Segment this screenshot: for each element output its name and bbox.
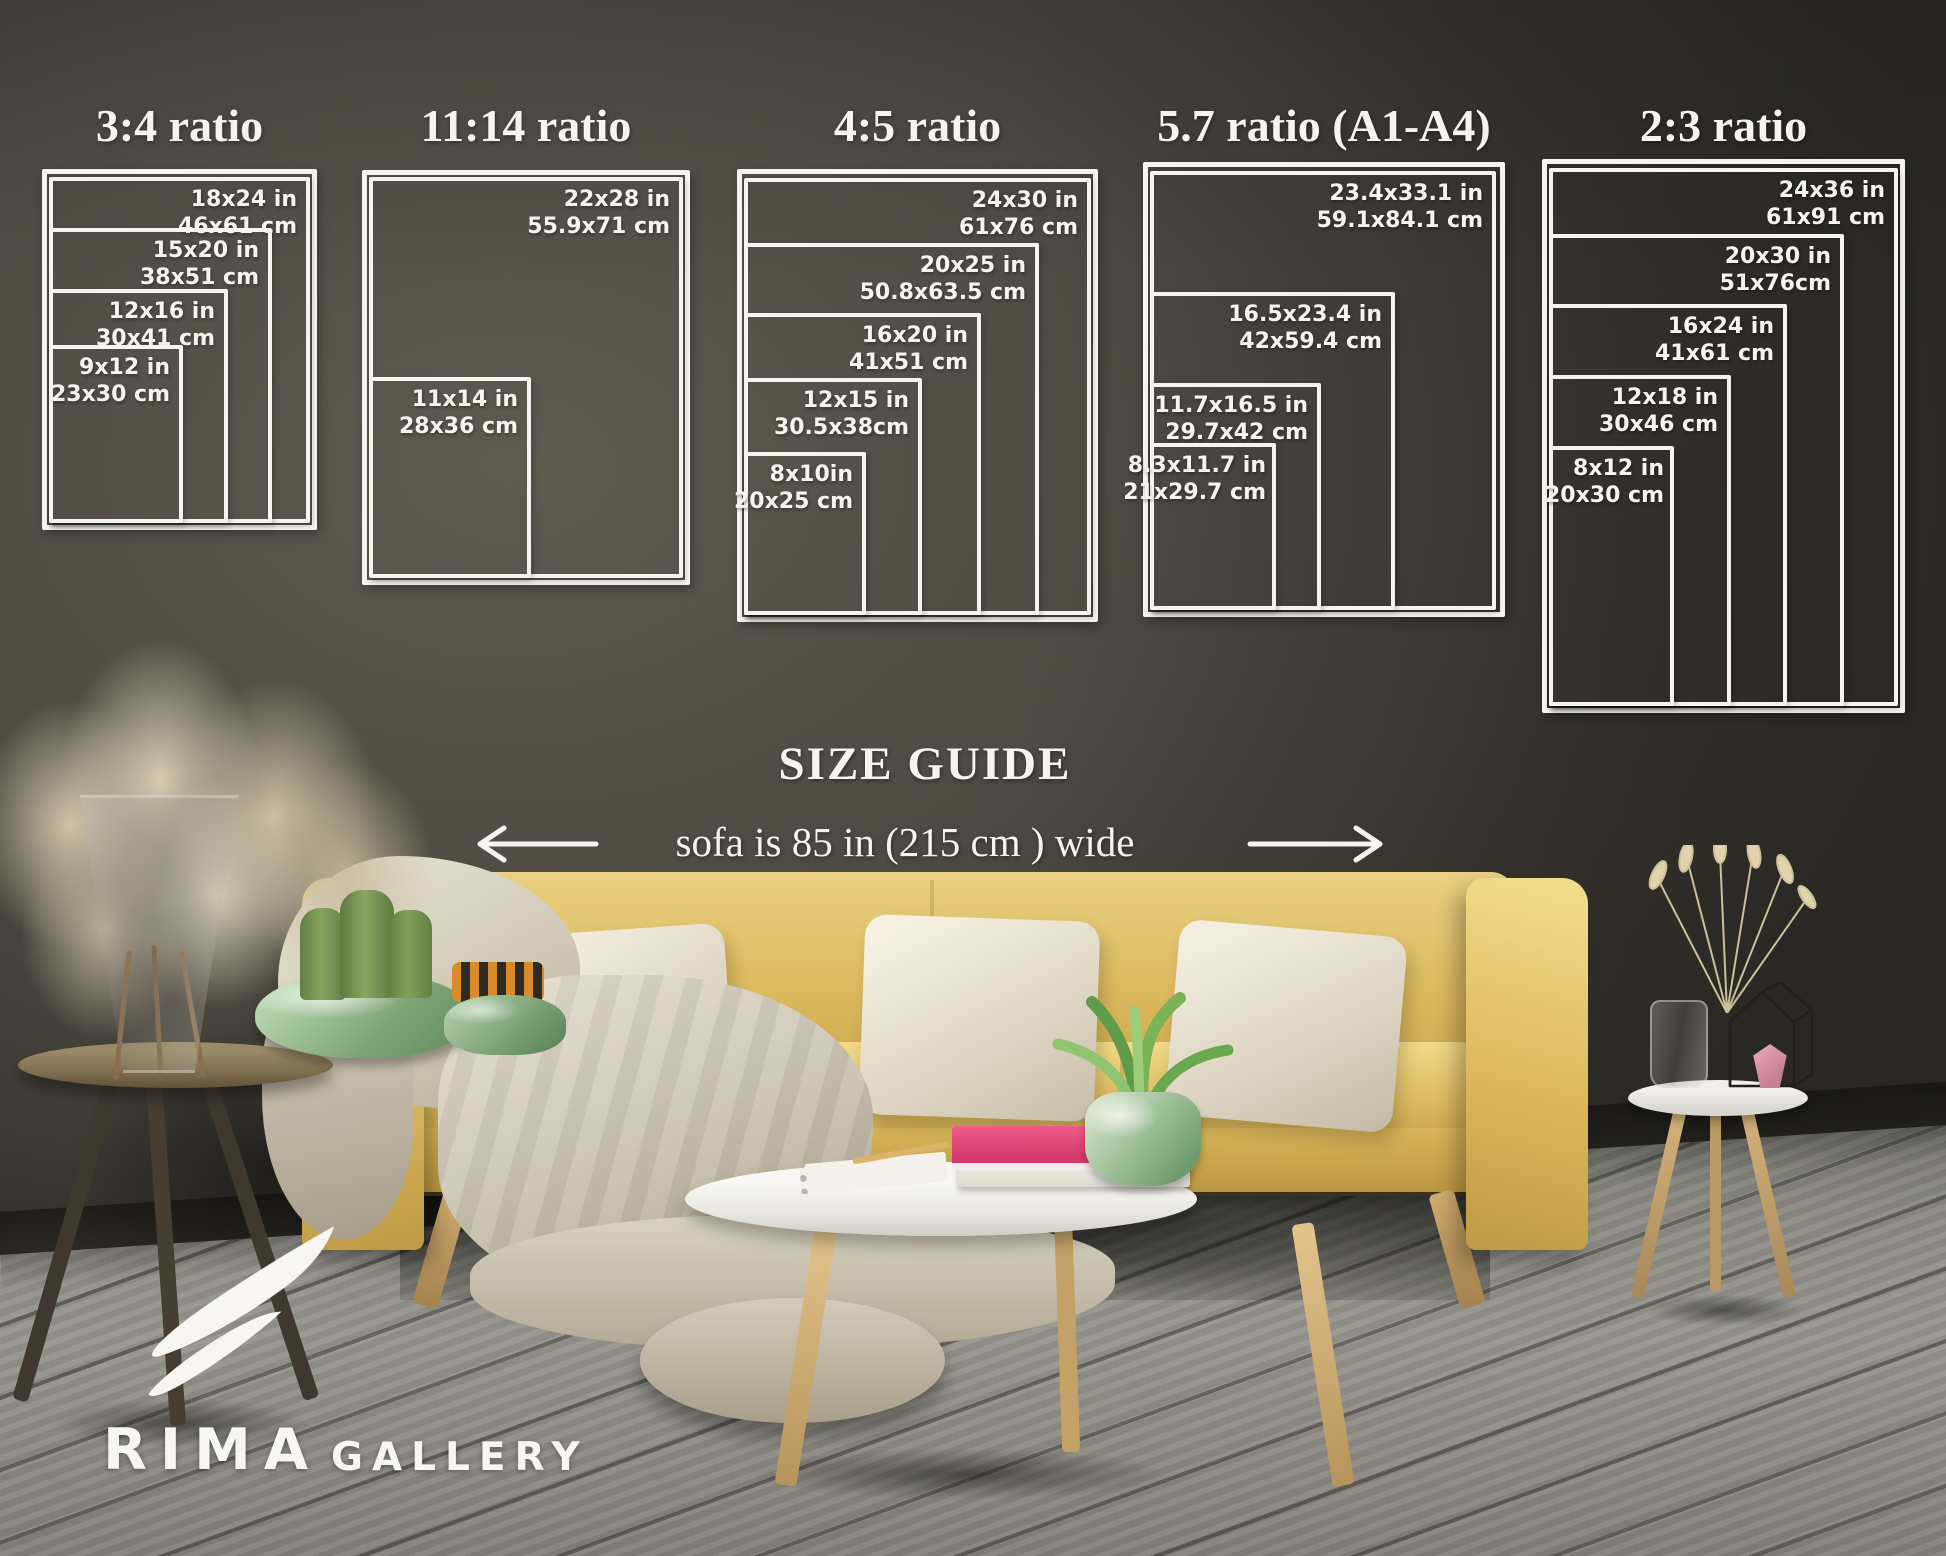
ratio-panel-2-3: 2:3 ratio 24x36 in 61x91 cm 20x30 in 51x…: [1542, 159, 1905, 713]
size-cm: 21x29.7 cm: [1123, 480, 1266, 507]
size-label: 16.5x23.4 in 42x59.4 cm: [1228, 302, 1382, 356]
right-table-leg: [1710, 1112, 1721, 1292]
size-label: 9x12 in 23x30 cm: [51, 355, 170, 409]
logo-brand-text: RIMA: [103, 1422, 321, 1479]
cactus-arm: [388, 910, 432, 998]
size-cm: 51x76cm: [1720, 271, 1831, 298]
logo-text: RIMA GALLERY: [103, 1422, 589, 1479]
logo-suffix-text: GALLERY: [331, 1438, 589, 1477]
size-cm: 30x46 cm: [1599, 412, 1718, 439]
size-rect-8x11: 8.3x11.7 in 21x29.7 cm: [1150, 443, 1276, 610]
size-rect-8x12: 8x12 in 20x30 cm: [1549, 446, 1674, 706]
size-label: 20x30 in 51x76cm: [1720, 244, 1831, 298]
ratio-panel-3-4: 3:4 ratio 18x24 in 46x61 cm 15x20 in 38x…: [42, 169, 317, 530]
size-cm: 20x25 cm: [734, 489, 853, 516]
size-inches: 12x18 in: [1599, 385, 1718, 412]
size-label: 24x30 in 61x76 cm: [959, 188, 1078, 242]
glass-bud-vase: [1650, 1000, 1708, 1088]
sofa-width-note: sofa is 85 in (215 cm ) wide: [676, 818, 1135, 866]
size-inches: 12x16 in: [96, 299, 215, 326]
size-inches: 24x30 in: [959, 188, 1078, 215]
ratio-panel-5-7: 5.7 ratio (A1-A4) 23.4x33.1 in 59.1x84.1…: [1143, 162, 1505, 617]
size-inches: 16x24 in: [1655, 314, 1774, 341]
small-green-pot: [444, 995, 566, 1055]
size-inches: 23.4x33.1 in: [1317, 181, 1483, 208]
cactus-body: [340, 890, 394, 998]
size-inches: 8x10in: [734, 462, 853, 489]
size-label: 16x20 in 41x51 cm: [849, 323, 968, 377]
panel-title: 5.7 ratio (A1-A4): [1157, 101, 1490, 152]
size-cm: 41x61 cm: [1655, 341, 1774, 368]
size-label: 15x20 in 38x51 cm: [140, 238, 259, 292]
size-inches: 12x15 in: [774, 388, 909, 415]
sofa-arm-right: [1466, 878, 1588, 1250]
size-inches: 8x12 in: [1545, 456, 1664, 483]
size-label: 8x10in 20x25 cm: [734, 462, 853, 516]
size-cm: 59.1x84.1 cm: [1317, 208, 1483, 235]
size-rect-11x14: 11x14 in 28x36 cm: [369, 377, 531, 578]
panel-title: 4:5 ratio: [834, 101, 1001, 152]
size-label: 16x24 in 41x61 cm: [1655, 314, 1774, 368]
size-inches: 16x20 in: [849, 323, 968, 350]
size-cm: 38x51 cm: [140, 265, 259, 292]
arrow-left-icon: [468, 822, 600, 866]
size-inches: 24x36 in: [1766, 178, 1885, 205]
green-vase: [1085, 1092, 1201, 1186]
size-label: 12x15 in 30.5x38cm: [774, 388, 909, 442]
size-rect-8x10: 8x10in 20x25 cm: [744, 452, 866, 615]
size-label: 8.3x11.7 in 21x29.7 cm: [1123, 453, 1266, 507]
size-guide-poster: 3:4 ratio 18x24 in 46x61 cm 15x20 in 38x…: [0, 0, 1946, 1556]
size-cm: 30.5x38cm: [774, 415, 909, 442]
swoosh-logo-icon: [112, 1226, 340, 1430]
size-cm: 61x91 cm: [1766, 205, 1885, 232]
size-cm: 55.9x71 cm: [527, 214, 670, 241]
size-label: 24x36 in 61x91 cm: [1766, 178, 1885, 232]
size-guide-heading: SIZE GUIDE: [779, 737, 1072, 791]
coffee-table-shadow: [665, 1438, 1255, 1510]
size-inches: 9x12 in: [51, 355, 170, 382]
size-cm: 20x30 cm: [1545, 483, 1664, 510]
size-cm: 28x36 cm: [399, 414, 518, 441]
ratio-panel-11-14: 11:14 ratio 22x28 in 55.9x71 cm 11x14 in…: [362, 170, 690, 585]
size-label: 23.4x33.1 in 59.1x84.1 cm: [1317, 181, 1483, 235]
size-inches: 20x25 in: [860, 253, 1026, 280]
right-table-shadow: [1615, 1288, 1835, 1332]
size-inches: 18x24 in: [178, 187, 297, 214]
size-inches: 8.3x11.7 in: [1123, 453, 1266, 480]
size-label: 11.7x16.5 in 29.7x42 cm: [1154, 393, 1308, 447]
size-inches: 22x28 in: [527, 187, 670, 214]
arrow-right-icon: [1246, 822, 1392, 866]
size-inches: 20x30 in: [1720, 244, 1831, 271]
size-label: 11x14 in 28x36 cm: [399, 387, 518, 441]
size-rect-9x12: 9x12 in 23x30 cm: [49, 345, 183, 523]
size-cm: 50.8x63.5 cm: [860, 280, 1026, 307]
size-cm: 41x51 cm: [849, 350, 968, 377]
size-label: 8x12 in 20x30 cm: [1545, 456, 1664, 510]
size-cm: 61x76 cm: [959, 215, 1078, 242]
size-cm: 23x30 cm: [51, 382, 170, 409]
size-inches: 15x20 in: [140, 238, 259, 265]
panel-title: 11:14 ratio: [421, 101, 632, 152]
ratio-panel-4-5: 4:5 ratio 24x30 in 61x76 cm 20x25 in 50.…: [737, 169, 1098, 622]
size-label: 12x18 in 30x46 cm: [1599, 385, 1718, 439]
size-inches: 16.5x23.4 in: [1228, 302, 1382, 329]
size-cm: 42x59.4 cm: [1228, 329, 1382, 356]
size-inches: 11x14 in: [399, 387, 518, 414]
size-label: 20x25 in 50.8x63.5 cm: [860, 253, 1026, 307]
size-inches: 11.7x16.5 in: [1154, 393, 1308, 420]
panel-title: 3:4 ratio: [96, 101, 263, 152]
panel-title: 2:3 ratio: [1640, 101, 1807, 152]
size-label: 22x28 in 55.9x71 cm: [527, 187, 670, 241]
